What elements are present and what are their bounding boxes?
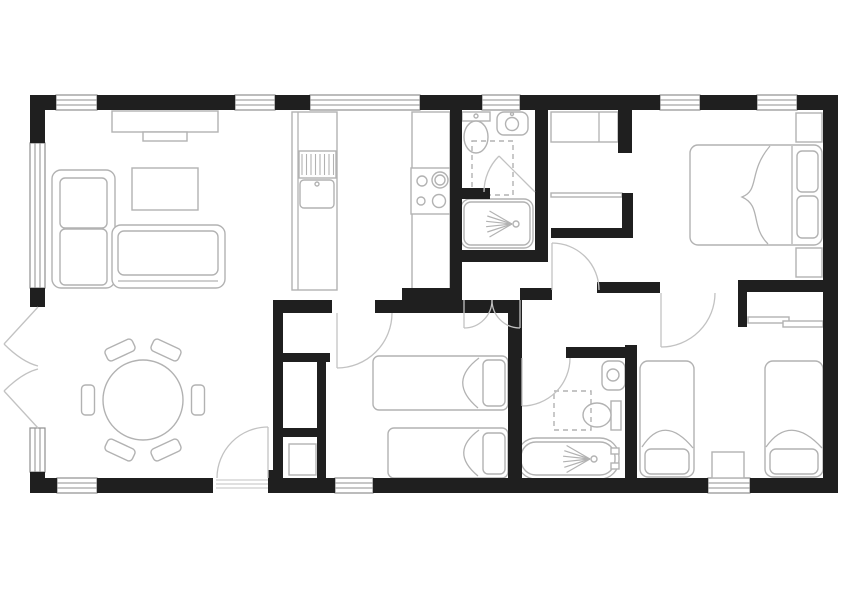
right-closet-slide-2 — [783, 321, 823, 327]
bedroom3-nightstand — [712, 452, 744, 478]
hob-burner-4 — [433, 195, 446, 208]
right-wall — [823, 95, 838, 493]
master-west-wall — [618, 102, 632, 153]
wc-toilet-bowl — [464, 121, 488, 153]
floor-plan — [0, 0, 841, 595]
sink-drainer — [299, 151, 336, 178]
bedroom3-bed-2-pillow — [770, 449, 818, 474]
window-bottom-3 — [708, 478, 750, 493]
storage-east-wall-lower — [317, 437, 326, 478]
master-nightstand-2 — [796, 248, 822, 277]
bottom-wall-seg-2 — [97, 478, 213, 493]
bathroom2-toilet-cistern — [611, 401, 621, 430]
bathtub-tap-1 — [611, 448, 619, 454]
entry-door-arc — [217, 427, 268, 478]
right-closet-west-wall — [738, 292, 747, 327]
hall-wardrobe — [551, 112, 618, 142]
bathroom2-east-wall — [625, 345, 637, 478]
bathroom2-door-arc — [522, 358, 570, 406]
tv-sideboard-notch — [143, 132, 187, 141]
entry-door-stub — [268, 470, 282, 478]
master-nightstand-1 — [796, 113, 822, 142]
sofa-cushion-1 — [60, 178, 107, 228]
floor-plan-canvas — [0, 0, 841, 595]
top-wall-seg-3 — [275, 95, 310, 110]
wc-basin-bowl — [506, 118, 519, 131]
entry-threshold — [216, 480, 268, 488]
dining-chair-4 — [192, 385, 205, 415]
top-wall-seg-5 — [520, 95, 660, 110]
french-door-leaf-1 — [4, 307, 38, 344]
french-door-arc-2 — [4, 369, 38, 391]
bedroom2-bed-1-pillow — [483, 360, 505, 406]
bottom-wall-seg-3 — [268, 478, 335, 493]
shower-head — [513, 221, 519, 227]
bedroom2-north-wall-2 — [375, 300, 522, 313]
window-top-4 — [482, 95, 520, 110]
bedroom2-north-wall-1 — [273, 300, 332, 313]
master-south-wall-2 — [738, 280, 825, 292]
tv-sideboard — [112, 111, 218, 132]
window-top-6 — [757, 95, 797, 110]
master-pillow-2 — [797, 196, 818, 238]
wc-basin-tap — [511, 113, 514, 116]
window-top-2 — [235, 95, 275, 110]
bedroom2-bed-2-pillow — [483, 433, 505, 474]
window-left-2 — [30, 428, 45, 472]
wc-toilet-flush — [474, 114, 478, 118]
sink-tap — [315, 182, 319, 186]
window-top-5 — [660, 95, 700, 110]
window-top-3 — [310, 95, 420, 110]
shower-tray-inner — [464, 202, 530, 245]
hall-closet-south-wall — [551, 228, 633, 238]
dining-chair-2 — [104, 338, 137, 362]
bottom-wall-seg-5 — [750, 478, 838, 493]
dining-chair-1 — [150, 338, 183, 362]
storage-north-wall — [273, 353, 330, 362]
bottom-wall-seg-4 — [373, 478, 708, 493]
top-wall-seg-2 — [97, 95, 235, 110]
hall-stub-wall-1 — [402, 288, 462, 300]
dining-chair-3 — [82, 385, 95, 415]
dining-table — [103, 360, 183, 440]
bedroom3-bed-1-pillow — [645, 449, 689, 474]
dining-east-wall — [273, 300, 283, 478]
master-pillow-1 — [797, 151, 818, 192]
left-wall-seg-1 — [30, 95, 45, 143]
hall-door-arc — [552, 243, 599, 290]
top-wall-seg-4 — [420, 95, 482, 110]
storage-appliance — [289, 444, 316, 475]
master-south-wall-1 — [597, 282, 660, 293]
shower-south-wall — [456, 250, 548, 262]
bathroom2-basin-bowl — [607, 369, 619, 381]
kitchen-wc-wall — [450, 110, 462, 300]
wc-door-arc — [484, 156, 499, 192]
hall-stub-wall-2 — [520, 288, 552, 300]
window-bottom-1 — [57, 478, 97, 493]
storage-divider — [283, 428, 326, 437]
bathroom2-north-wall — [566, 347, 637, 358]
dining-chair-6 — [150, 438, 183, 462]
coffee-table — [132, 168, 198, 210]
bathroom2-toilet-bowl — [583, 403, 611, 427]
window-top-1 — [56, 95, 97, 110]
window-bottom-2 — [335, 478, 373, 493]
sofa-chaise-cushion — [118, 231, 218, 275]
hob-burner-2-inner — [435, 175, 445, 185]
window-left-1 — [30, 143, 45, 288]
french-door-arc-1 — [4, 344, 38, 366]
hob-burner-1 — [417, 176, 427, 186]
bathtub-tap-2 — [611, 463, 619, 469]
sofa-cushion-2 — [60, 229, 107, 285]
bathtub-shower-head — [591, 456, 597, 462]
top-wall-seg-6 — [700, 95, 757, 110]
storage-east-wall-upper — [317, 362, 326, 428]
master-door-arc — [661, 293, 715, 347]
wc-east-wall — [535, 110, 548, 262]
hob-burner-3 — [417, 197, 425, 205]
hall-closet-front — [551, 193, 622, 197]
french-door-leaf-2 — [4, 391, 38, 428]
dining-chair-5 — [104, 438, 137, 462]
left-wall-seg-3 — [30, 472, 45, 493]
wc-south-wall — [462, 188, 490, 199]
left-wall-seg-2 — [30, 288, 45, 307]
wc-door-leaf — [499, 156, 535, 192]
